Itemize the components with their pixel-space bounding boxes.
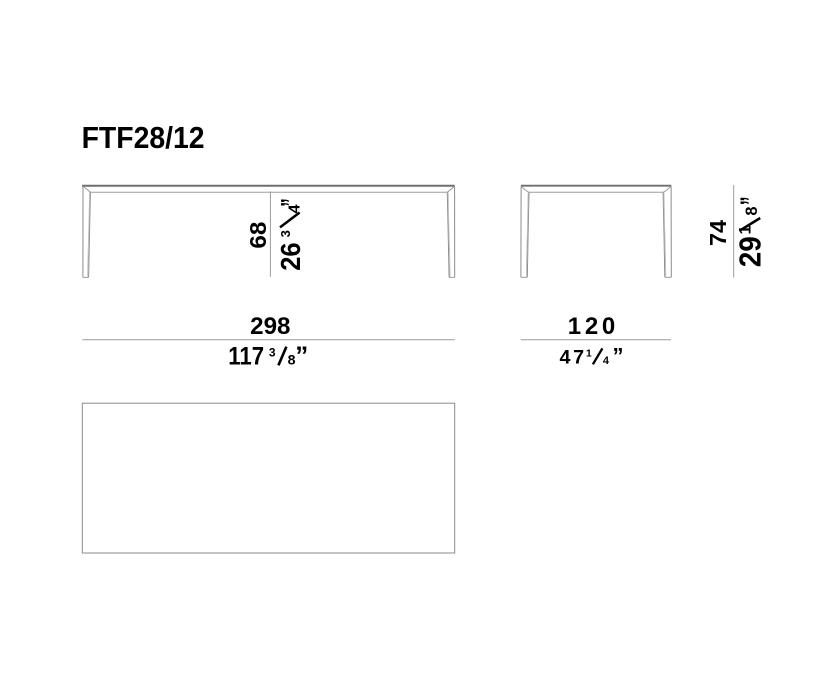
- svg-text:”: ”: [736, 196, 768, 205]
- svg-text:4: 4: [603, 355, 610, 367]
- svg-text:1: 1: [586, 349, 592, 360]
- svg-text:”: ”: [295, 341, 308, 371]
- svg-text:47: 47: [560, 346, 585, 368]
- svg-text:26: 26: [274, 243, 306, 271]
- svg-text:8: 8: [743, 206, 761, 215]
- svg-text:3: 3: [269, 346, 276, 360]
- svg-text:74: 74: [705, 220, 731, 246]
- svg-text:3: 3: [278, 230, 293, 237]
- svg-text:”: ”: [613, 343, 624, 368]
- svg-text:298: 298: [250, 313, 290, 340]
- svg-text:”: ”: [274, 198, 306, 207]
- svg-text:117: 117: [228, 344, 264, 371]
- svg-text:29: 29: [734, 236, 768, 267]
- svg-text:120: 120: [568, 313, 616, 340]
- svg-text:FTF28/12: FTF28/12: [82, 121, 205, 155]
- svg-text:68: 68: [245, 221, 271, 248]
